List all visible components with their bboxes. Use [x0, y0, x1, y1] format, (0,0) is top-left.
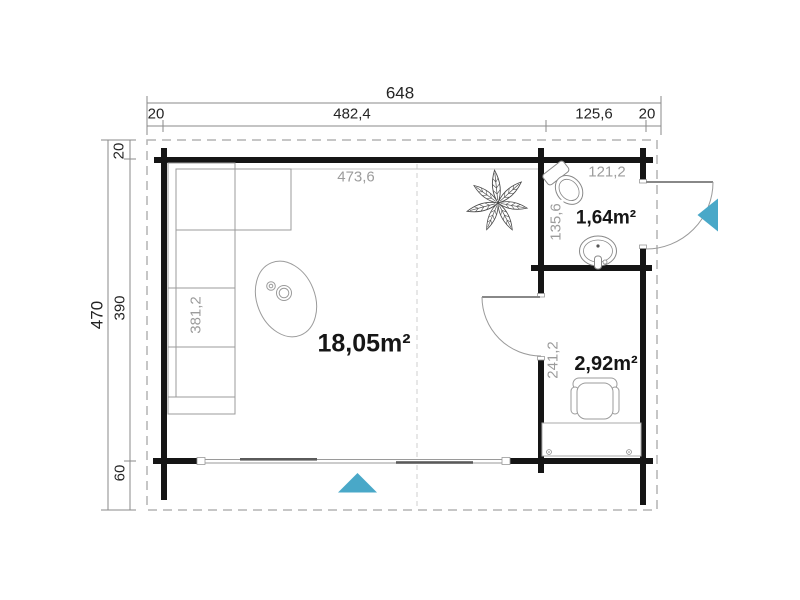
sliding-panel-1: [240, 458, 317, 461]
office-door: [482, 294, 545, 361]
wall-wc-divider: [531, 265, 652, 271]
dim-top-overhang-right-label: 20: [639, 107, 656, 122]
office-area-label: 2,92m²: [574, 354, 637, 374]
wc-width-label: 121,2: [585, 165, 629, 180]
wall-partition-upper: [538, 148, 544, 297]
wall-top: [154, 157, 653, 163]
dim-top-main-label: 482,4: [333, 107, 371, 122]
wall-bottom-left: [153, 458, 197, 464]
living-room-area-label: 18,05m²: [317, 332, 410, 357]
dim-left-main-label: 390: [113, 295, 128, 320]
wall-left: [161, 148, 167, 500]
office-depth-label: 241,2: [546, 338, 561, 382]
glass-front: [197, 458, 510, 465]
dim-top-annex-label: 125,6: [575, 107, 613, 122]
office-chair: [571, 378, 619, 419]
office-door-swing-arc: [482, 297, 541, 356]
wc-area-label: 1,64m²: [576, 209, 636, 228]
dim-left-porch-label: 60: [113, 465, 128, 482]
dim-total-width-label: 648: [386, 85, 414, 102]
living-width-label: 473,6: [334, 170, 378, 185]
wall-right-upper: [640, 148, 646, 180]
sink: [580, 236, 617, 269]
floor-plan-page: 648 20 482,4 125,6 20 470 20 390 60 473,…: [0, 0, 800, 600]
dim-total-depth-label: 470: [89, 301, 106, 329]
sofa-length-label: 381,2: [189, 293, 204, 337]
entrance-arrow-left-icon: [698, 199, 719, 232]
entrance-arrow-up-icon: [338, 473, 377, 493]
sliding-panel-2: [396, 461, 473, 464]
coffee-table: [245, 252, 328, 346]
dim-left-overhang-top-label: 20: [112, 143, 127, 160]
wc-depth-label: 135,6: [549, 200, 564, 244]
dim-top-overhang-left-label: 20: [148, 107, 165, 122]
plant: [466, 170, 528, 232]
wall-bottom-right: [508, 458, 653, 464]
wall-right-lower: [640, 248, 646, 505]
desk: [542, 423, 641, 456]
